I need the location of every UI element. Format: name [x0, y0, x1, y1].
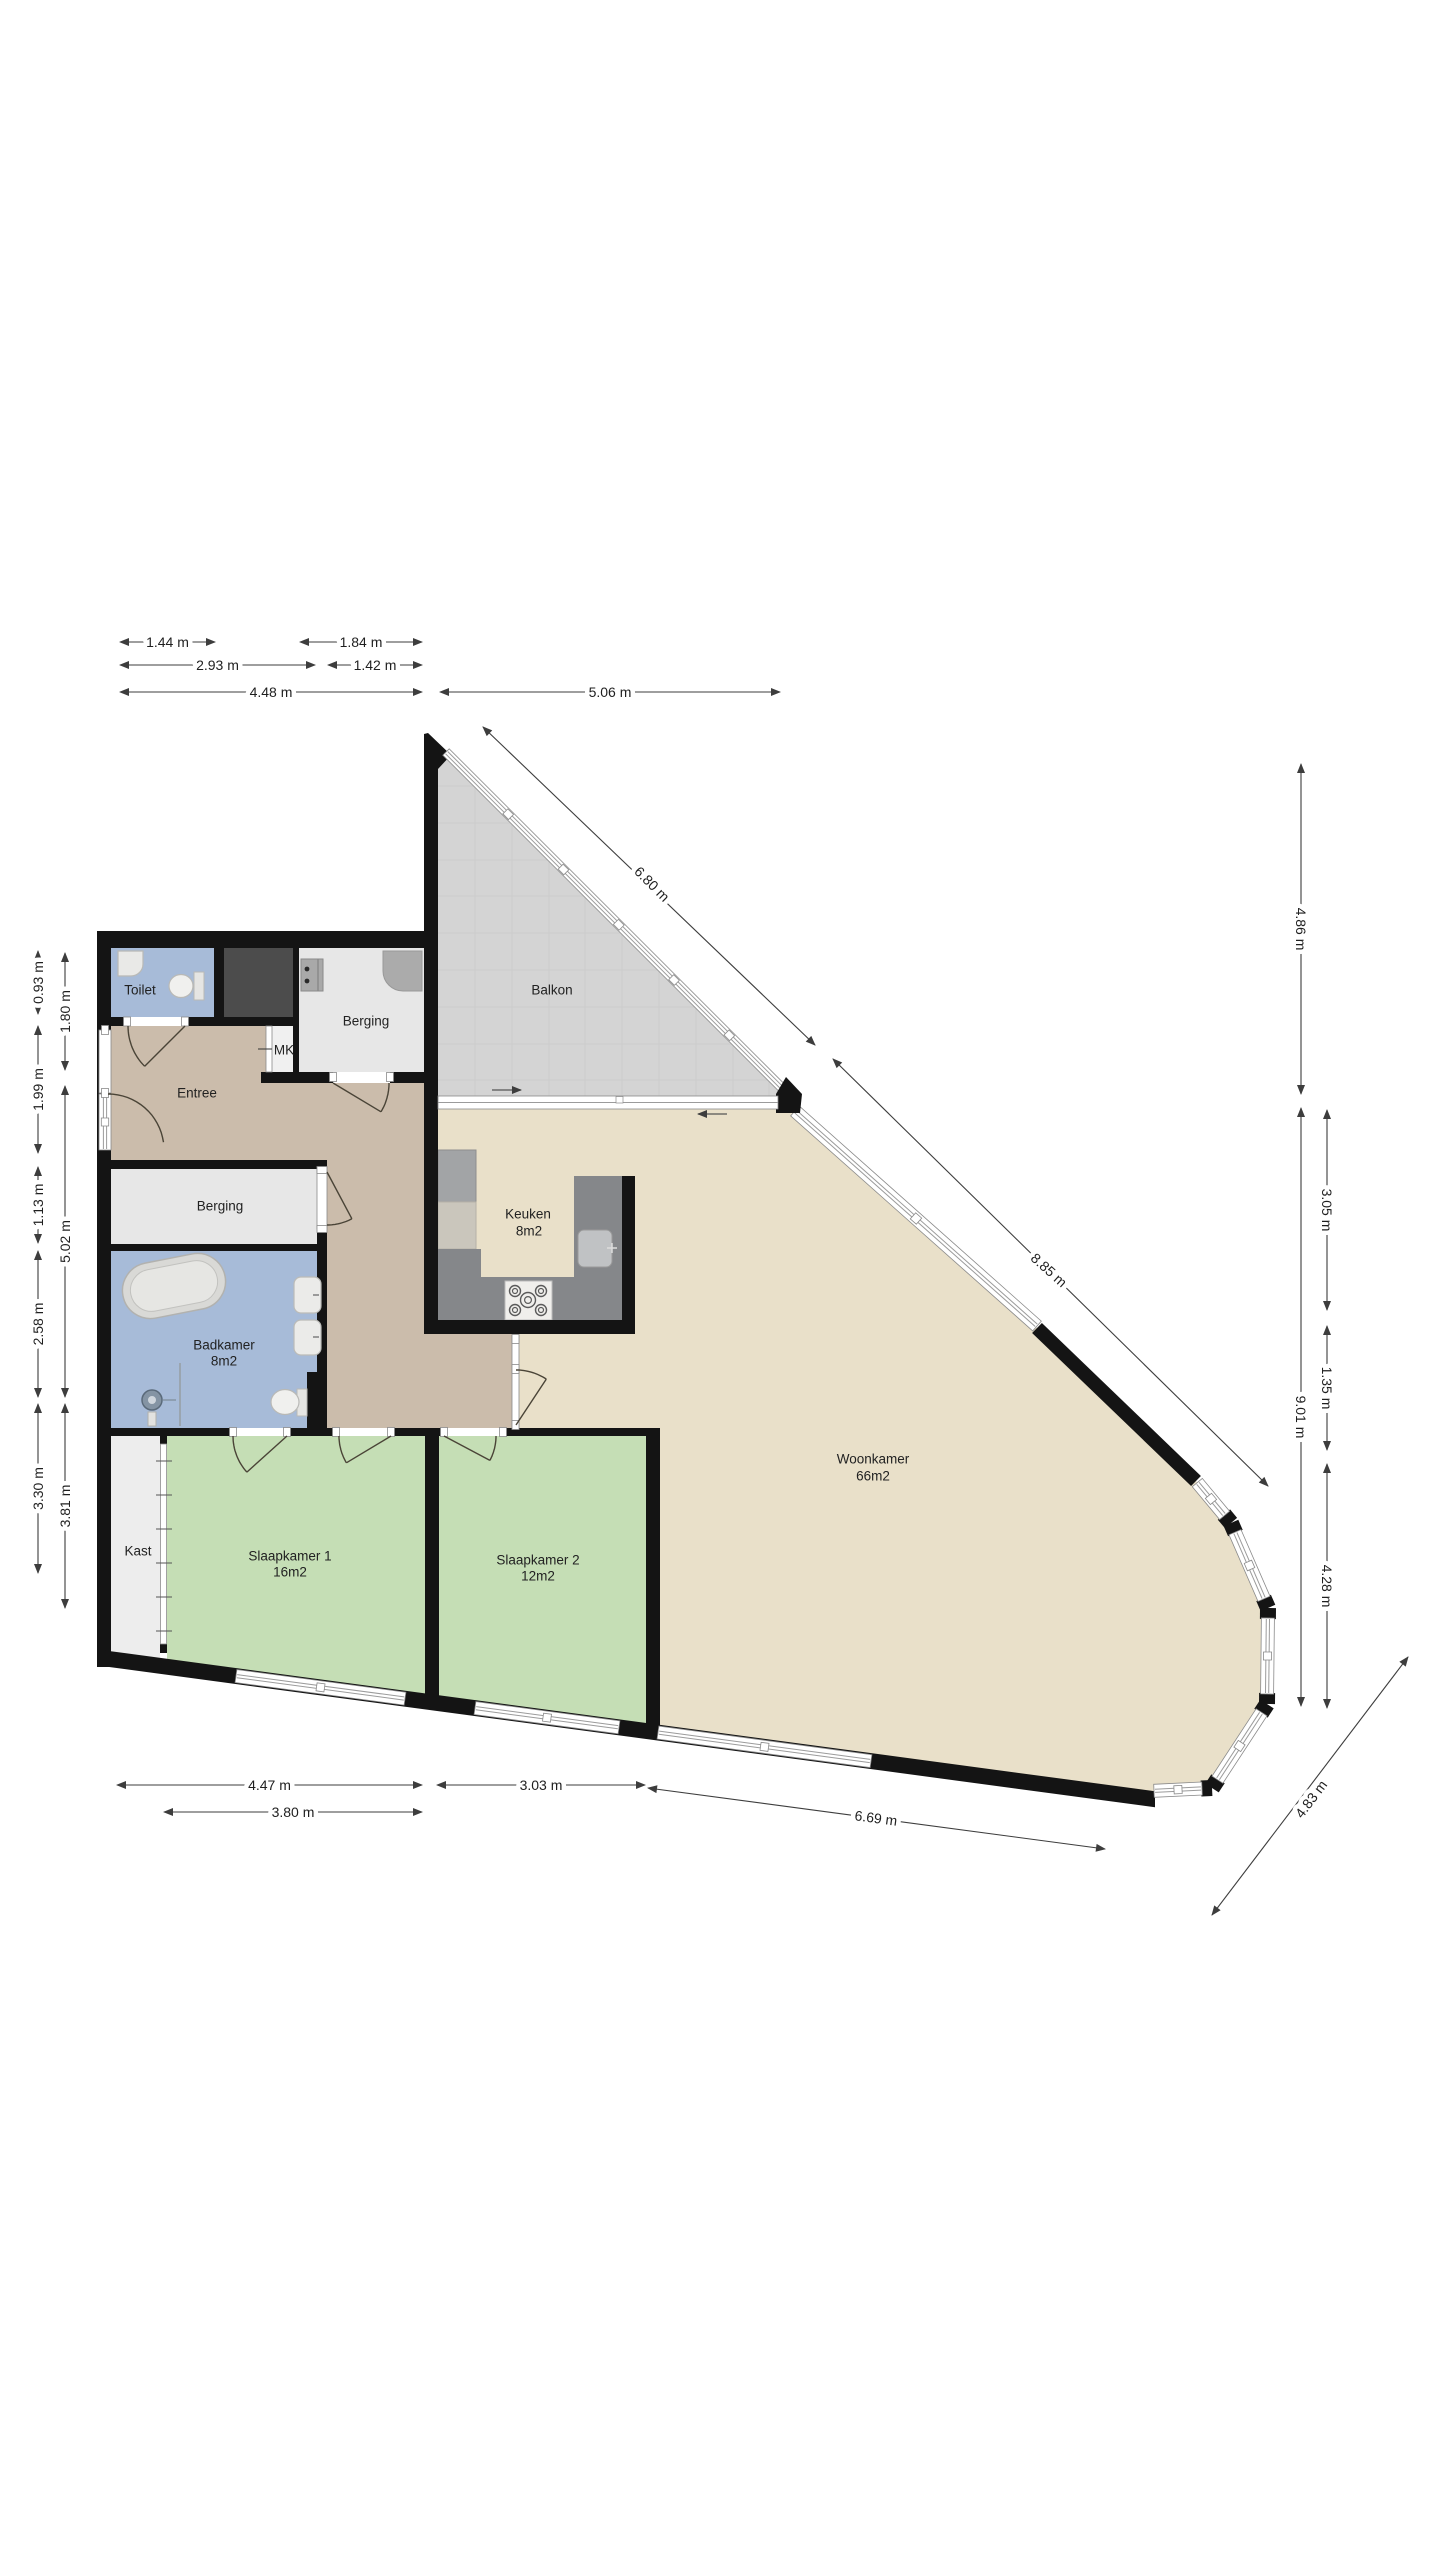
svg-text:12m2: 12m2	[521, 1569, 555, 1584]
svg-text:1.13 m: 1.13 m	[30, 1184, 46, 1227]
svg-text:4.48 m: 4.48 m	[250, 684, 293, 700]
svg-text:2.93 m: 2.93 m	[196, 657, 239, 673]
svg-text:1.44 m: 1.44 m	[146, 634, 189, 650]
svg-text:2.58 m: 2.58 m	[30, 1303, 46, 1346]
svg-text:Slaapkamer 1: Slaapkamer 1	[248, 1549, 331, 1564]
svg-text:Slaapkamer 2: Slaapkamer 2	[496, 1553, 579, 1568]
svg-text:Berging: Berging	[197, 1199, 244, 1214]
svg-text:Balkon: Balkon	[531, 983, 572, 998]
svg-text:Berging: Berging	[343, 1014, 390, 1029]
svg-text:4.28 m: 4.28 m	[1319, 1565, 1335, 1608]
svg-text:3.30 m: 3.30 m	[30, 1467, 46, 1510]
svg-text:3.81 m: 3.81 m	[57, 1485, 73, 1528]
svg-text:Toilet: Toilet	[124, 983, 156, 998]
svg-text:5.02 m: 5.02 m	[57, 1220, 73, 1263]
svg-text:3.80 m: 3.80 m	[272, 1804, 315, 1820]
svg-text:Woonkamer: Woonkamer	[837, 1452, 910, 1467]
svg-text:9.01 m: 9.01 m	[1293, 1396, 1309, 1439]
svg-text:8m2: 8m2	[211, 1354, 237, 1369]
svg-text:3.05 m: 3.05 m	[1319, 1189, 1335, 1232]
svg-text:Kast: Kast	[124, 1544, 151, 1559]
svg-text:4.47 m: 4.47 m	[248, 1777, 291, 1793]
svg-text:3.03 m: 3.03 m	[520, 1777, 563, 1793]
svg-text:1.42 m: 1.42 m	[354, 657, 397, 673]
svg-text:1.35 m: 1.35 m	[1319, 1367, 1335, 1410]
svg-text:0.93 m: 0.93 m	[30, 961, 46, 1004]
svg-text:1.80 m: 1.80 m	[57, 990, 73, 1033]
svg-text:8m2: 8m2	[516, 1224, 542, 1239]
svg-text:5.06 m: 5.06 m	[589, 684, 632, 700]
svg-text:Keuken: Keuken	[505, 1207, 551, 1222]
svg-text:MK: MK	[274, 1043, 294, 1058]
svg-text:1.99 m: 1.99 m	[30, 1068, 46, 1111]
svg-text:66m2: 66m2	[856, 1469, 890, 1484]
svg-text:4.86 m: 4.86 m	[1293, 908, 1309, 951]
svg-text:Entree: Entree	[177, 1086, 217, 1101]
svg-text:16m2: 16m2	[273, 1565, 307, 1580]
svg-text:Badkamer: Badkamer	[193, 1338, 255, 1353]
svg-text:1.84 m: 1.84 m	[340, 634, 383, 650]
